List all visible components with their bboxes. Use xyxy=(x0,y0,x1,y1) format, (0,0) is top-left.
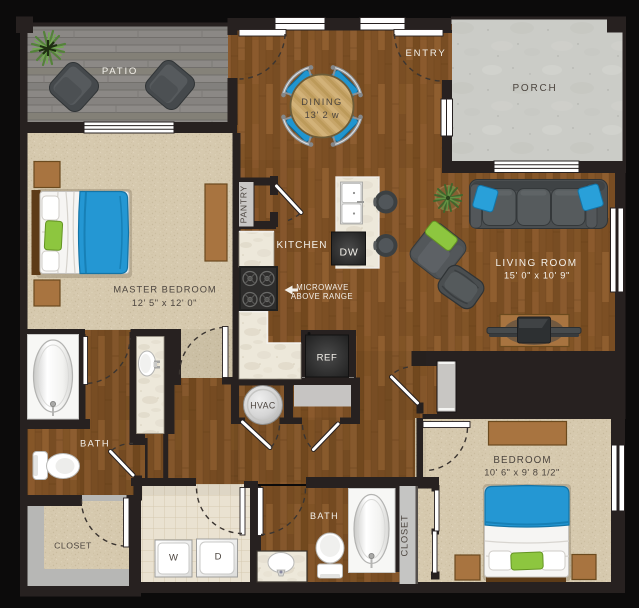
svg-text:PANTRY: PANTRY xyxy=(239,185,249,223)
svg-text:10' 6" x 9' 8 1/2": 10' 6" x 9' 8 1/2" xyxy=(484,468,560,478)
svg-text:D: D xyxy=(215,552,222,563)
svg-text:BEDROOM: BEDROOM xyxy=(493,455,551,466)
svg-text:PATIO: PATIO xyxy=(102,66,138,77)
svg-text:HVAC: HVAC xyxy=(250,401,276,411)
svg-text:DINING: DINING xyxy=(301,97,343,107)
svg-text:ABOVE RANGE: ABOVE RANGE xyxy=(291,292,353,301)
svg-text:PORCH: PORCH xyxy=(512,83,557,94)
svg-text:15' 0" x 10' 9": 15' 0" x 10' 9" xyxy=(504,271,570,281)
svg-text:CLOSET: CLOSET xyxy=(400,515,410,557)
svg-text:MASTER BEDROOM: MASTER BEDROOM xyxy=(113,285,216,295)
svg-text:MICROWAVE: MICROWAVE xyxy=(296,283,349,292)
svg-text:DW: DW xyxy=(339,247,358,259)
svg-text:W: W xyxy=(169,553,178,564)
svg-text:13' 2 w: 13' 2 w xyxy=(305,110,340,120)
svg-text:BATH: BATH xyxy=(80,439,110,449)
svg-text:ENTRY: ENTRY xyxy=(405,48,446,59)
svg-text:12' 5" x 12' 0": 12' 5" x 12' 0" xyxy=(132,298,197,308)
svg-text:LIVING ROOM: LIVING ROOM xyxy=(495,258,577,269)
svg-text:REF: REF xyxy=(317,353,338,364)
svg-text:KITCHEN: KITCHEN xyxy=(277,240,328,251)
svg-text:BATH: BATH xyxy=(310,511,339,521)
svg-text:CLOSET: CLOSET xyxy=(54,541,92,551)
